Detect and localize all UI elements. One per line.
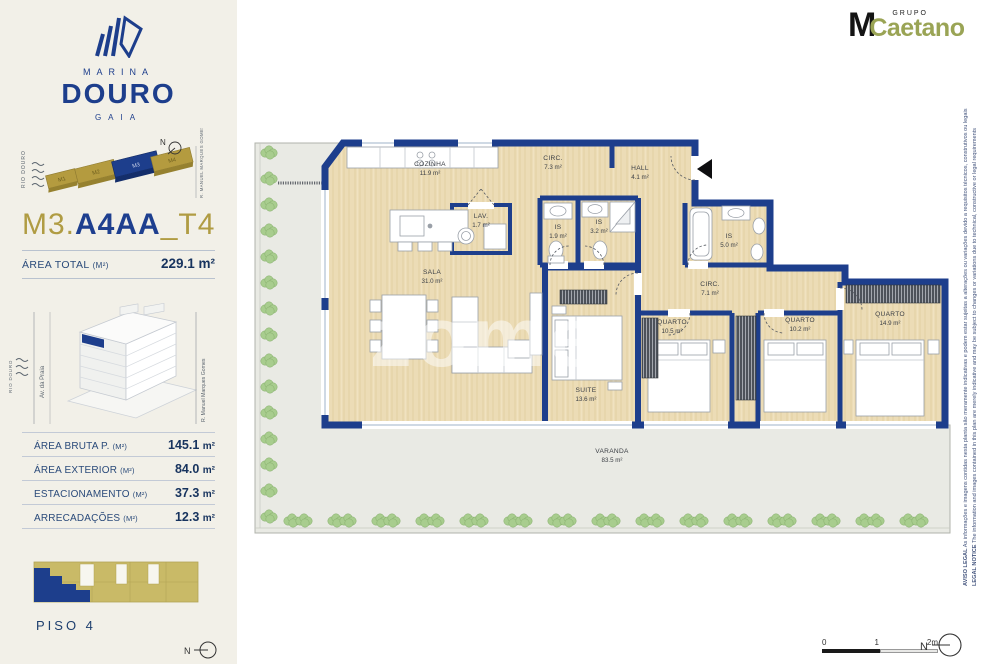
room-area: 5.0 m² <box>720 242 738 249</box>
scale-0: 0 <box>822 638 826 647</box>
river-waves-icon <box>16 359 28 376</box>
room-label: SALA <box>423 269 441 276</box>
river-waves-icon <box>32 163 44 187</box>
room-area: 11.9 m² <box>420 170 441 177</box>
room-area: 3.2 m² <box>590 228 608 235</box>
area-table-row: ÁREA BRUTA P. (M²)145.1 m² <box>22 432 215 457</box>
room-label: HALL <box>631 165 649 172</box>
brand-gaia: GAIA <box>0 113 237 122</box>
room-label: SUITE <box>576 387 597 394</box>
area-table-row: ÁREA EXTERIOR (M²)84.0 m² <box>22 457 215 481</box>
svg-text:N: N <box>184 646 191 656</box>
room-label: CIRC. <box>543 155 562 162</box>
piso-label: PISO 4 <box>36 618 96 633</box>
unit-title: M3.A4AA_T4 <box>22 208 215 242</box>
area-table-row: ARRECADAÇÕES (M²)12.3 m² <box>22 505 215 529</box>
room-label: VARANDA <box>595 448 629 455</box>
site-blocks: M1 M2 M3 M4 <box>44 147 194 192</box>
area-total-row: ÁREA TOTAL (M²) 229.1 m² <box>22 256 215 271</box>
room-label: CIRC. <box>700 281 719 288</box>
room-area: 83.5 m² <box>602 457 623 464</box>
building-illustration: RIO DOURO Av. da Praia R. Manuel Marques… <box>0 298 237 432</box>
room-label: IS <box>596 219 603 226</box>
area-table-row: ESTACIONAMENTO (M²)37.3 m² <box>22 481 215 505</box>
svg-text:N: N <box>920 641 928 653</box>
room-area: 31.0 m² <box>422 278 443 285</box>
building-3d <box>68 303 196 418</box>
room-area: 10.2 m² <box>790 326 811 333</box>
street-right-label: R. Manuel Marques Gomes <box>201 358 207 422</box>
room-label: QUARTO <box>875 311 905 318</box>
floor-plan: zome COZINHA11.9 m²CIRC.7.3 m²HALL4.1 m²… <box>240 128 960 540</box>
brand-marina: MARINA <box>0 67 237 77</box>
room-area: 1.7 m² <box>472 222 490 229</box>
bushes <box>261 146 277 523</box>
street-left-label: Av. da Praia <box>40 365 46 398</box>
room-area: 7.1 m² <box>701 290 719 297</box>
floor-footprint <box>0 550 237 610</box>
brand-douro: DOURO <box>0 78 237 110</box>
room-label: LAV. <box>474 213 488 220</box>
building-river-label: RIO DOURO <box>8 360 13 393</box>
grupo-caetano-logo: M GRUPO Caetano <box>848 8 964 43</box>
legal-text: AVISO LEGAL As informações e imagens con… <box>958 140 988 586</box>
room-label: COZINHA <box>414 161 446 168</box>
sidebar: MARINA DOURO GAIA RIO DOURO M1 M2 M3 <box>0 0 237 664</box>
room-area: 7.3 m² <box>544 164 562 171</box>
room-label: IS <box>726 233 733 240</box>
svg-text:N: N <box>160 138 166 147</box>
sidebar-north-icon: N <box>180 638 230 662</box>
room-label: QUARTO <box>657 319 687 326</box>
scale-1: 1 <box>874 638 878 647</box>
site-street-label: R. MANUEL MARQUES GOMES <box>199 128 204 198</box>
room-area: 14.9 m² <box>880 320 901 327</box>
room-area: 10.5 m² <box>662 328 683 335</box>
site-river-label: RIO DOURO <box>21 150 27 188</box>
marina-douro-icon <box>87 12 151 58</box>
room-area: 13.6 m² <box>576 396 597 403</box>
page: { "header": { "grupo": "GRUPO", "m": "M"… <box>0 0 1000 664</box>
area-table: ÁREA BRUTA P. (M²)145.1 m²ÁREA EXTERIOR … <box>22 432 215 529</box>
brand-logo: MARINA DOURO GAIA <box>0 12 237 122</box>
divider <box>22 250 215 251</box>
site-map: RIO DOURO M1 M2 M3 M4 <box>0 128 237 206</box>
plan-north-icon: N <box>916 630 972 660</box>
divider <box>22 278 215 279</box>
room-label: QUARTO <box>785 317 815 324</box>
room-area: 4.1 m² <box>631 174 649 181</box>
watermark: zome <box>370 290 601 384</box>
entrance-arrow-icon <box>697 159 712 179</box>
caetano-name: Caetano <box>869 14 964 43</box>
room-area: 1.9 m² <box>549 233 567 240</box>
room-label: IS <box>555 224 562 231</box>
